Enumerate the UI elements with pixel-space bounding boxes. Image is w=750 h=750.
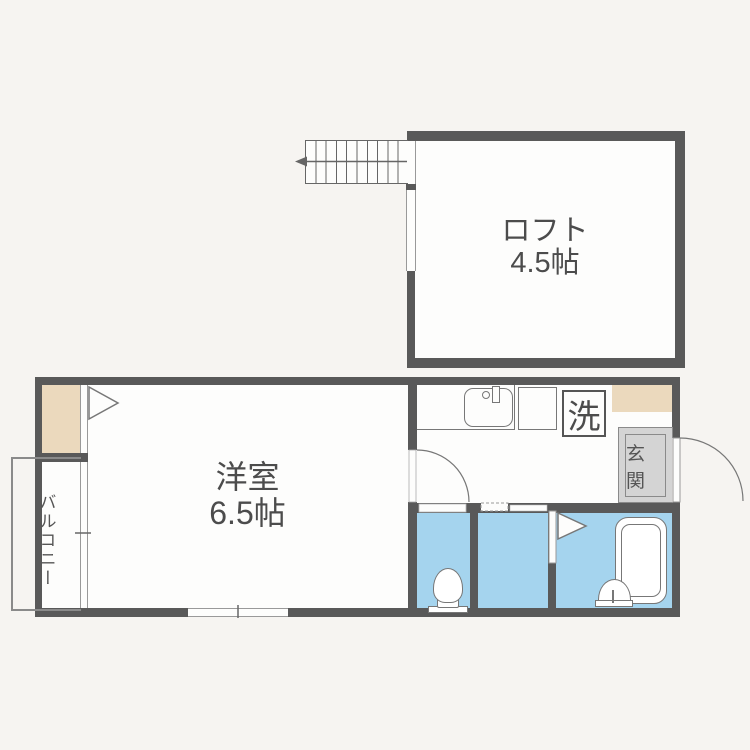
loft-name: ロフト	[460, 215, 630, 247]
toilet-icon	[433, 568, 463, 603]
entrance-label: 玄関	[626, 439, 665, 493]
entrance-step: 玄関	[625, 434, 666, 497]
laundry-label: 洗	[568, 390, 601, 438]
washroom	[478, 513, 548, 608]
sliding-window-left	[80, 462, 88, 608]
washbasin-base	[595, 600, 633, 607]
closet	[42, 385, 80, 453]
appliance-space	[518, 387, 557, 430]
washing-machine-space: 洗	[562, 390, 606, 437]
western-room-label: 洋室 6.5帖	[160, 460, 335, 532]
entrance-door-arc	[680, 438, 743, 501]
faucet-dot-icon	[482, 391, 490, 399]
entrance-area: 玄関	[618, 427, 673, 503]
western-area: 6.5帖	[160, 496, 335, 532]
balcony-label: バルコニー	[11, 470, 81, 610]
loft-window	[406, 190, 416, 271]
washbasin-tap	[612, 590, 614, 603]
stairs	[305, 140, 408, 184]
loft-area: 4.5帖	[460, 247, 630, 279]
loft-label: ロフト 4.5帖	[460, 215, 630, 280]
wall-washroom-bath	[548, 513, 556, 608]
western-door-opening	[408, 450, 417, 502]
wall-hall-wet	[417, 503, 672, 513]
shoe-cabinet	[612, 385, 672, 412]
faucet-tap-icon	[492, 386, 500, 403]
closet-door-track	[80, 385, 88, 453]
entrance-door-opening	[672, 438, 680, 502]
western-name: 洋室	[160, 460, 335, 496]
window-bottom	[188, 608, 288, 617]
wall-toilet-washroom	[470, 513, 478, 608]
floor-plan-page: { "plan_type": "apartment-floor-plan", "…	[0, 0, 750, 750]
door-symbols-overlay	[0, 0, 750, 750]
